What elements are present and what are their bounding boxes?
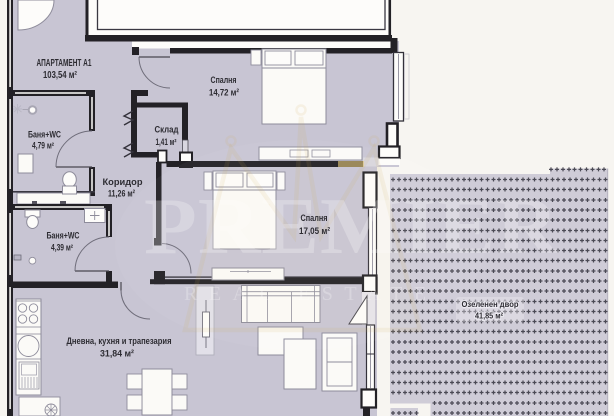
svg-text:Спалня: Спалня <box>211 75 237 86</box>
svg-text:Баня+WC: Баня+WC <box>28 130 61 140</box>
svg-text:PREMIER: PREMIER <box>144 183 559 271</box>
svg-text:Баня+WC: Баня+WC <box>47 231 80 241</box>
svg-text:1,41 м²: 1,41 м² <box>156 137 177 147</box>
svg-text:4,39 м²: 4,39 м² <box>51 243 73 253</box>
svg-text:Коридор: Коридор <box>103 177 143 188</box>
svg-text:41,85 м²: 41,85 м² <box>475 311 503 321</box>
svg-text:103,54 м²: 103,54 м² <box>43 70 78 81</box>
svg-text:17,05 м²: 17,05 м² <box>299 226 330 237</box>
svg-text:4,79 м²: 4,79 м² <box>32 141 54 151</box>
svg-text:14,72 м²: 14,72 м² <box>209 88 239 99</box>
svg-text:Дневна, кухня и трапезария: Дневна, кухня и трапезария <box>67 336 172 347</box>
svg-text:Спалня: Спалня <box>301 213 328 224</box>
svg-text:31,84 м²: 31,84 м² <box>100 349 134 360</box>
svg-text:Озеленен двор: Озеленен двор <box>462 299 519 309</box>
svg-text:11,26 м²: 11,26 м² <box>108 189 135 200</box>
svg-text:Склад: Склад <box>155 125 179 135</box>
svg-text:АПАРТАМЕНТ А1: АПАРТАМЕНТ А1 <box>37 58 92 69</box>
svg-text:REAL ESTATE: REAL ESTATE <box>184 283 438 305</box>
